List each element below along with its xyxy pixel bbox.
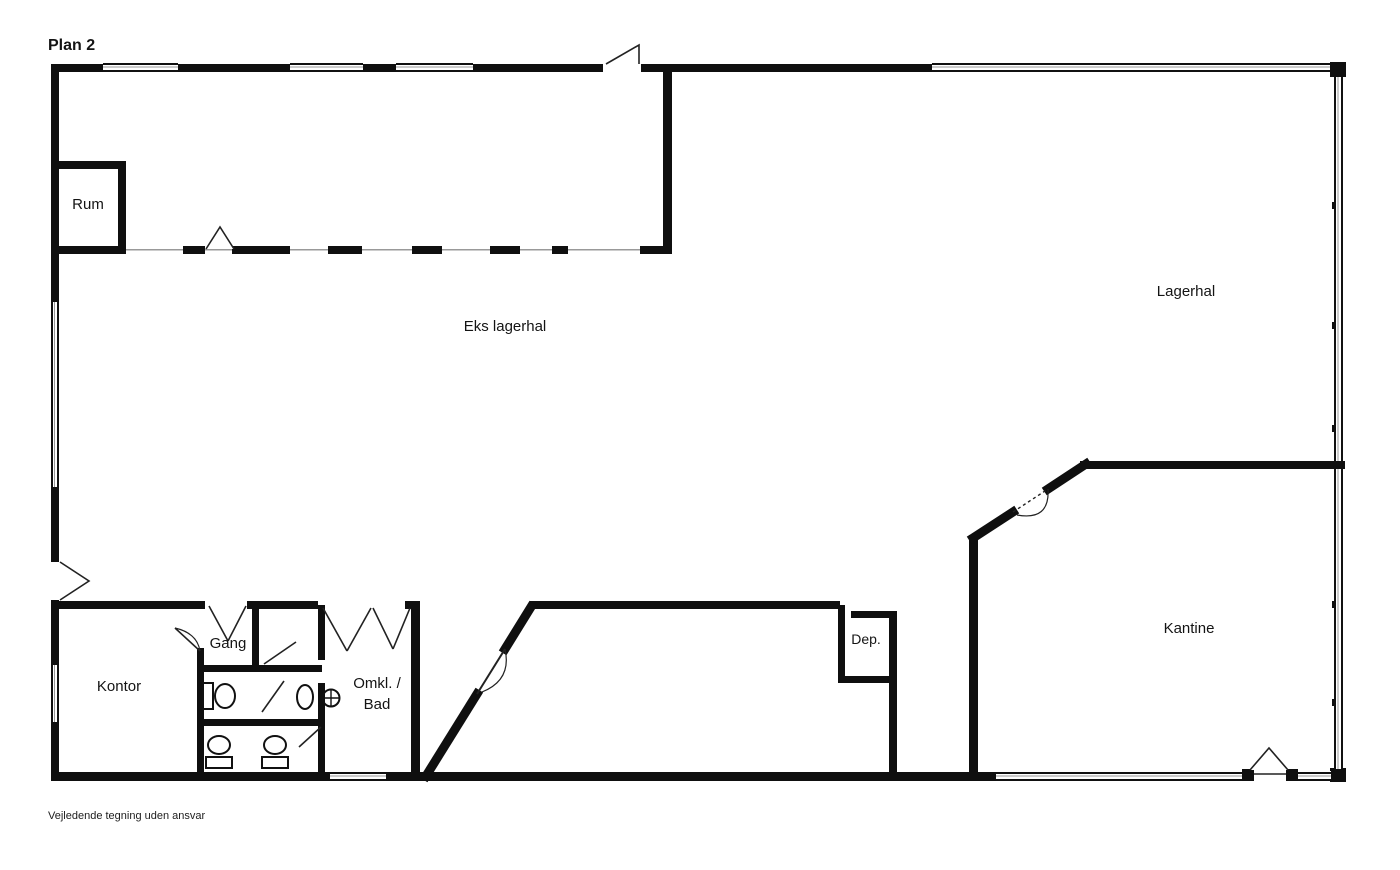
door-swing-icon <box>323 608 347 651</box>
wall-segment <box>183 246 205 254</box>
wall-segment <box>328 246 362 254</box>
room-label-omkl-bad-line1: Omkl. / <box>353 675 401 692</box>
corner-post <box>1330 768 1346 782</box>
wall-segment <box>118 161 126 254</box>
wall-segment <box>473 64 603 72</box>
door-swing-icon <box>373 608 393 649</box>
wall-segment <box>505 607 531 649</box>
door-swing-icon <box>206 227 234 249</box>
toilet-icon <box>262 736 288 768</box>
toilet-icon <box>203 683 235 709</box>
wall-center-line <box>126 249 672 251</box>
room-label-eks-lagerhal: Eks lagerhal <box>464 318 547 335</box>
door-leaf <box>1013 489 1048 512</box>
wall-segment <box>412 246 442 254</box>
wall-segment <box>51 600 59 665</box>
door-arc <box>482 649 506 692</box>
wall-segment <box>641 64 932 72</box>
wall-segment <box>1080 461 1345 469</box>
outer-walls <box>51 62 1346 782</box>
window-symbol <box>1298 771 1331 781</box>
floor-plan-drawing: Plan 2 Rum Eks lagerhal Lagerhal Kontor … <box>0 0 1400 870</box>
wall-segment <box>552 246 568 254</box>
wall-segment <box>51 772 330 781</box>
door-jamb <box>1242 769 1254 781</box>
wall-segment <box>640 246 672 254</box>
diagonal-walls <box>426 464 1086 776</box>
door-swing-icon <box>262 681 284 712</box>
wall-segment <box>232 246 290 254</box>
window-symbol <box>50 665 60 722</box>
door-swing-icon <box>393 608 410 649</box>
wall-segment <box>51 64 59 302</box>
floor-drain-icon <box>323 690 340 707</box>
wall-segment <box>889 611 897 780</box>
wall-segment <box>973 512 1013 538</box>
plan-title: Plan 2 <box>48 37 95 54</box>
wall-segment <box>426 694 477 776</box>
room-label-kontor: Kontor <box>97 678 141 695</box>
toilet-icon <box>206 736 232 768</box>
window-symbol <box>330 771 386 781</box>
wall-segment <box>51 161 126 169</box>
wall-segment <box>490 246 520 254</box>
wall-segment <box>663 64 672 254</box>
window-symbol <box>1334 77 1343 769</box>
wall-segment <box>51 487 59 562</box>
disclaimer-text: Vejledende tegning uden ansvar <box>48 810 206 822</box>
room-label-gang: Gang <box>210 635 247 652</box>
door-swing-icon <box>175 628 200 651</box>
wall-segment <box>51 246 126 254</box>
wall-segment <box>197 665 322 672</box>
door-swing-icon <box>1250 748 1288 770</box>
wall-segment <box>411 601 420 780</box>
wall-segment <box>838 605 845 682</box>
wall-segment <box>1048 464 1086 489</box>
inner-walls <box>51 64 1345 780</box>
wall-segment <box>252 605 259 671</box>
floor-plan-page: Plan 2 Rum Eks lagerhal Lagerhal Kontor … <box>0 0 1400 870</box>
window-symbol <box>103 63 178 72</box>
window-symbol <box>932 63 1330 72</box>
door-swing-icon <box>347 608 371 651</box>
wall-segment <box>51 722 59 781</box>
wall-segment <box>386 772 996 781</box>
door-swing-icon <box>60 562 89 600</box>
window-symbol <box>290 63 363 72</box>
window-symbol <box>50 302 60 487</box>
room-label-omkl-bad-line2: Bad <box>364 696 391 713</box>
wall-segment <box>969 535 978 780</box>
toilet-icon <box>297 685 313 709</box>
door-arc <box>1017 489 1048 516</box>
wall-segment <box>363 64 396 72</box>
wall-segment <box>318 605 325 660</box>
room-label-dep: Dep. <box>851 631 881 647</box>
door-swing-icon <box>606 45 639 64</box>
wall-segment <box>178 64 290 72</box>
door-jamb <box>1286 769 1298 781</box>
window-symbol <box>396 63 473 72</box>
wall-segment <box>197 719 322 726</box>
windows <box>50 63 1343 781</box>
room-label-lagerhal: Lagerhal <box>1157 283 1215 300</box>
room-label-rum: Rum <box>72 196 104 213</box>
door-symbols <box>60 45 1288 774</box>
wall-segment <box>51 601 205 609</box>
window-symbol <box>996 771 1242 781</box>
corner-post <box>1330 62 1346 77</box>
wall-segment <box>838 676 896 683</box>
door-swing-icon <box>264 642 296 664</box>
door-swing-icon <box>299 727 321 747</box>
room-label-kantine: Kantine <box>1164 620 1215 637</box>
wall-segment <box>530 601 840 609</box>
